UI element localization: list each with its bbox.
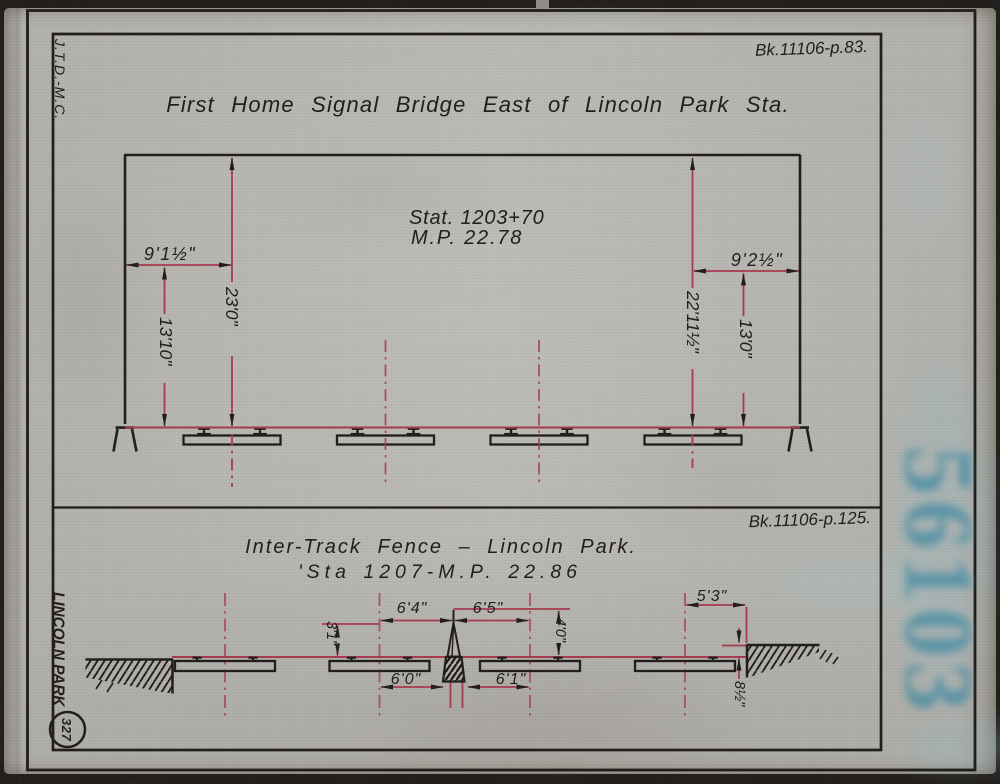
svg-text:4'0": 4'0" [552,618,568,643]
svg-text:13'10": 13'10" [156,317,176,366]
svg-text:22'11½": 22'11½" [683,290,703,354]
svg-text:First Home Signal Bridge East: First Home Signal Bridge East of Lincoln… [166,92,790,117]
svg-text:J.T.D.-M.C.: J.T.D.-M.C. [52,38,68,120]
svg-text:Bk.11106-p.125.: Bk.11106-p.125. [748,508,871,531]
svg-text:3'1": 3'1" [323,621,339,646]
svg-text:9'1½": 9'1½" [144,244,196,264]
svg-text:56103: 56103 [884,446,992,716]
svg-text:6'5": 6'5" [473,600,504,617]
svg-text:5'3": 5'3" [697,588,728,605]
svg-text:M.P. 22.78: M.P. 22.78 [411,227,523,249]
svg-text:8½": 8½" [731,681,747,707]
svg-text:Bk.11106-p.83.: Bk.11106-p.83. [755,37,868,60]
svg-text:13'0": 13'0" [736,319,756,359]
svg-text:6'4": 6'4" [397,600,428,617]
svg-text:LINCOLN PARK: LINCOLN PARK [50,592,67,707]
svg-text:Stat. 1203+70: Stat. 1203+70 [409,207,545,229]
svg-text:23'0": 23'0" [222,286,242,327]
svg-text:6'0": 6'0" [391,671,422,688]
svg-text:'Sta 1207-M.P. 22.86: 'Sta 1207-M.P. 22.86 [298,561,582,583]
svg-text:6'1": 6'1" [496,671,527,688]
svg-text:327: 327 [59,718,74,741]
svg-text:Inter-Track Fence – Lincoln Pa: Inter-Track Fence – Lincoln Park. [245,536,637,558]
svg-text:9'2½": 9'2½" [731,250,783,270]
